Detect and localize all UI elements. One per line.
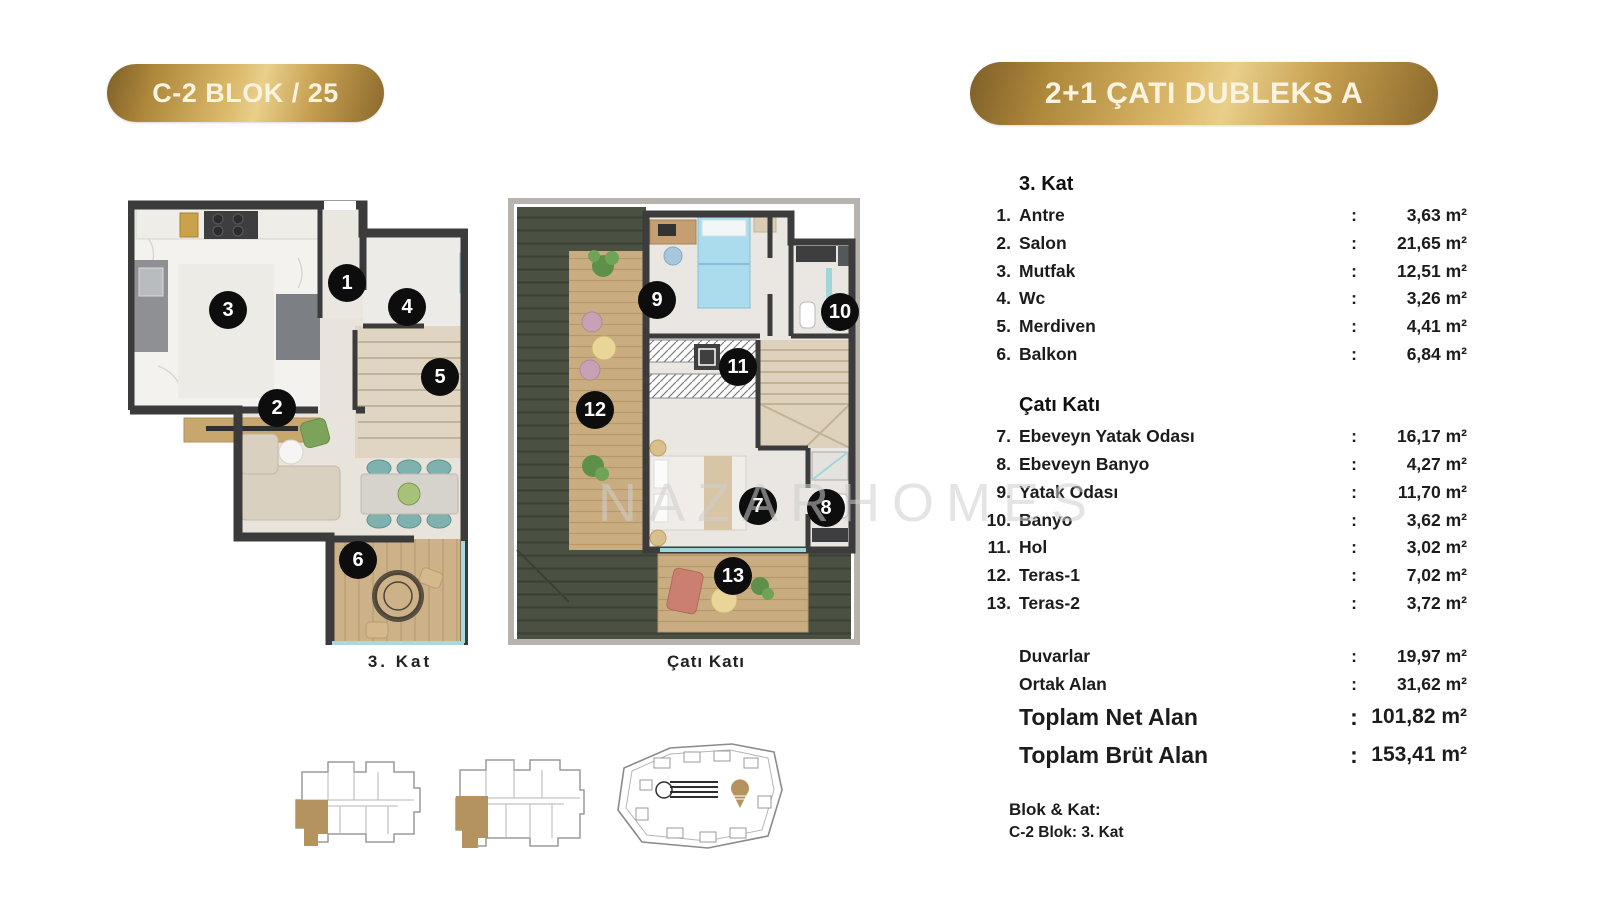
- room-label: Ebeveyn Banyo: [1019, 454, 1343, 475]
- room-area: 7,02 m²: [1365, 565, 1477, 586]
- key-plan-floor-2: [450, 748, 590, 858]
- room-marker-6: 6: [339, 541, 377, 579]
- room-area: 101,82 m²: [1365, 705, 1477, 729]
- room-marker-11: 11: [719, 348, 757, 386]
- key-plans: [288, 738, 790, 858]
- area-row: 8.Ebeveyn Banyo:4,27 m²: [985, 451, 1477, 479]
- room-label: Hol: [1019, 537, 1343, 558]
- block-badge: C-2 BLOK / 25: [107, 64, 384, 122]
- room-area: 16,17 m²: [1365, 426, 1477, 447]
- room-area: 11,70 m²: [1365, 482, 1477, 503]
- room-label: Toplam Net Alan: [1019, 704, 1343, 731]
- row-number: 1.: [985, 205, 1019, 226]
- row-number: 5.: [985, 316, 1019, 337]
- room-markers-cati-kati: 78910111213: [508, 198, 860, 648]
- row-number: 7.: [985, 426, 1019, 447]
- room-label: Balkon: [1019, 344, 1343, 365]
- block-badge-label: C-2 BLOK / 25: [152, 78, 339, 109]
- row-number: 4.: [985, 288, 1019, 309]
- floor-plan-cati-kati: 78910111213: [508, 198, 860, 648]
- area-row: 4.Wc:3,26 m²: [985, 285, 1477, 313]
- colon: :: [1343, 537, 1365, 558]
- colon: :: [1343, 742, 1365, 769]
- plan-caption-cati-kati: Çatı Katı: [626, 652, 786, 672]
- room-label: Merdiven: [1019, 316, 1343, 337]
- colon: :: [1343, 205, 1365, 226]
- area-row: 13.Teras-2:3,72 m²: [985, 589, 1477, 617]
- room-area: 19,97 m²: [1365, 646, 1477, 667]
- room-area: 4,27 m²: [1365, 454, 1477, 475]
- section-title: 3. Kat: [1019, 173, 1477, 196]
- room-label: Wc: [1019, 288, 1343, 309]
- room-label: Mutfak: [1019, 261, 1343, 282]
- blok-kat-title: Blok & Kat:: [1009, 800, 1477, 820]
- row-number: 9.: [985, 482, 1019, 503]
- unit-type-badge: 2+1 ÇATI DUBLEKS A: [970, 62, 1438, 125]
- room-area: 6,84 m²: [1365, 344, 1477, 365]
- room-marker-2: 2: [258, 389, 296, 427]
- colon: :: [1343, 646, 1365, 667]
- room-area: 3,26 m²: [1365, 288, 1477, 309]
- room-label: Teras-2: [1019, 593, 1343, 614]
- row-number: 2.: [985, 233, 1019, 254]
- site-plan: [612, 738, 790, 858]
- colon: :: [1343, 316, 1365, 337]
- area-row: Toplam Net Alan:101,82 m²: [985, 698, 1477, 736]
- room-area: 12,51 m²: [1365, 261, 1477, 282]
- room-area: 3,62 m²: [1365, 510, 1477, 531]
- blok-kat-value: C-2 Blok: 3. Kat: [1009, 824, 1477, 842]
- colon: :: [1343, 704, 1365, 731]
- plan-caption-3-kat: 3. Kat: [330, 652, 470, 672]
- room-marker-4: 4: [388, 288, 426, 326]
- room-marker-12: 12: [576, 391, 614, 429]
- room-area: 4,41 m²: [1365, 316, 1477, 337]
- colon: :: [1343, 233, 1365, 254]
- room-label: Toplam Brüt Alan: [1019, 742, 1343, 769]
- room-label: Banyo: [1019, 510, 1343, 531]
- room-marker-3: 3: [209, 291, 247, 329]
- area-row: 7.Ebeveyn Yatak Odası:16,17 m²: [985, 423, 1477, 451]
- area-row: 9.Yatak Odası:11,70 m²: [985, 479, 1477, 507]
- room-area: 31,62 m²: [1365, 674, 1477, 695]
- room-label: Teras-1: [1019, 565, 1343, 586]
- key-plan-floor-1: [288, 748, 428, 858]
- room-marker-10: 10: [821, 293, 859, 331]
- room-marker-1: 1: [328, 264, 366, 302]
- area-row: Ortak Alan:31,62 m²: [985, 671, 1477, 699]
- row-number: 6.: [985, 344, 1019, 365]
- area-row: 5.Merdiven:4,41 m²: [985, 313, 1477, 341]
- room-marker-5: 5: [421, 358, 459, 396]
- colon: :: [1343, 482, 1365, 503]
- area-row: 3.Mutfak:12,51 m²: [985, 257, 1477, 285]
- row-number: 3.: [985, 261, 1019, 282]
- colon: :: [1343, 426, 1365, 447]
- area-row: 11.Hol:3,02 m²: [985, 534, 1477, 562]
- room-label: Duvarlar: [1019, 646, 1343, 667]
- row-number: 8.: [985, 454, 1019, 475]
- room-marker-9: 9: [638, 281, 676, 319]
- room-markers-3-kat: 123456: [128, 198, 468, 648]
- row-number: 13.: [985, 593, 1019, 614]
- area-row: 10.Banyo:3,62 m²: [985, 506, 1477, 534]
- unit-type-badge-label: 2+1 ÇATI DUBLEKS A: [1045, 77, 1363, 111]
- row-number: 12.: [985, 565, 1019, 586]
- room-area: 3,02 m²: [1365, 537, 1477, 558]
- room-area: 153,41 m²: [1365, 743, 1477, 767]
- room-area: 3,72 m²: [1365, 593, 1477, 614]
- room-label: Ortak Alan: [1019, 674, 1343, 695]
- area-row: Duvarlar:19,97 m²: [985, 643, 1477, 671]
- colon: :: [1343, 344, 1365, 365]
- colon: :: [1343, 593, 1365, 614]
- area-row: 12.Teras-1:7,02 m²: [985, 562, 1477, 590]
- colon: :: [1343, 261, 1365, 282]
- area-row: 2.Salon:21,65 m²: [985, 230, 1477, 258]
- floor-plan-3-kat: 123456: [128, 198, 468, 648]
- room-marker-13: 13: [714, 557, 752, 595]
- area-row: 1.Antre:3,63 m²: [985, 202, 1477, 230]
- colon: :: [1343, 565, 1365, 586]
- row-number: 11.: [985, 537, 1019, 558]
- area-details-panel: 3. Kat1.Antre:3,63 m²2.Salon:21,65 m²3.M…: [985, 173, 1477, 842]
- colon: :: [1343, 288, 1365, 309]
- room-marker-7: 7: [739, 487, 777, 525]
- area-row: Toplam Brüt Alan:153,41 m²: [985, 736, 1477, 774]
- section-title: Çatı Katı: [1019, 394, 1477, 417]
- area-row: 6.Balkon:6,84 m²: [985, 340, 1477, 368]
- brochure-page: C-2 BLOK / 25 2+1 ÇATI DUBLEKS A: [0, 0, 1600, 900]
- room-label: Ebeveyn Yatak Odası: [1019, 426, 1343, 447]
- area-sections: 3. Kat1.Antre:3,63 m²2.Salon:21,65 m²3.M…: [985, 173, 1477, 617]
- row-number: 10.: [985, 510, 1019, 531]
- room-label: Yatak Odası: [1019, 482, 1343, 503]
- colon: :: [1343, 510, 1365, 531]
- blok-kat-footer: Blok & Kat: C-2 Blok: 3. Kat: [1009, 800, 1477, 842]
- room-label: Antre: [1019, 205, 1343, 226]
- room-area: 21,65 m²: [1365, 233, 1477, 254]
- room-label: Salon: [1019, 233, 1343, 254]
- colon: :: [1343, 674, 1365, 695]
- room-area: 3,63 m²: [1365, 205, 1477, 226]
- colon: :: [1343, 454, 1365, 475]
- area-summary: Duvarlar:19,97 m²Ortak Alan:31,62 m²Topl…: [985, 643, 1477, 774]
- room-marker-8: 8: [807, 489, 845, 527]
